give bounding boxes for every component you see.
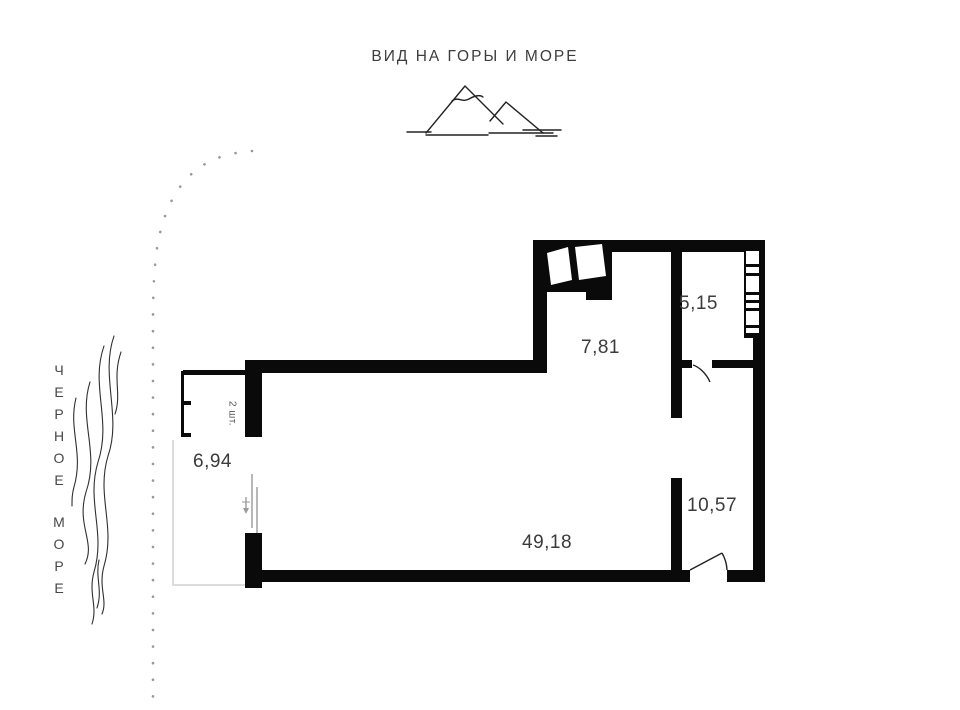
wall-bottom: [258, 570, 690, 582]
sea-word-1: ЧЕРНОЕ: [52, 362, 66, 494]
mountains-and-sea-icon: [407, 86, 561, 136]
window-count-note: 2 шт.: [227, 392, 238, 436]
area-label-hall: 5,15: [679, 293, 718, 315]
closet-icon: [533, 240, 612, 300]
sliding-door-icon: [242, 474, 257, 533]
area-label-living: 49,18: [522, 532, 572, 554]
balcony-parapet: [183, 370, 247, 375]
wall-living-top: [245, 360, 547, 373]
sea-waves-icon: [72, 336, 121, 624]
shelf-unit-icon: [744, 246, 765, 338]
area-label-corridor: 10,57: [687, 495, 737, 517]
pier-bottom-left: [245, 533, 262, 588]
hall-door-icon: [693, 365, 710, 382]
wall-divider-upper: [671, 252, 682, 418]
wall-hall-stub-right: [712, 360, 753, 368]
entrance-door-icon: [690, 553, 727, 570]
area-label-kitchen: 7,81: [581, 337, 620, 359]
floorplan-drawing: [0, 0, 960, 710]
black-sea-label: ЧЕРНОЕ МОРЕ: [48, 362, 70, 602]
wall-bottom-right: [727, 570, 765, 582]
sea-word-2: МОРЕ: [52, 514, 66, 602]
wall-hall-stub-left: [671, 360, 692, 368]
floor-plan-walls: [183, 240, 765, 588]
area-label-balcony: 6,94: [193, 451, 232, 473]
floorplan-page: ВИД НА ГОРЫ И МОРЕ ЧЕРНОЕ МОРЕ 6,94 7,81…: [0, 0, 960, 710]
page-title: ВИД НА ГОРЫ И МОРЕ: [250, 48, 700, 66]
wall-divider-lower: [671, 478, 682, 570]
balcony-window-icon: [181, 371, 191, 437]
